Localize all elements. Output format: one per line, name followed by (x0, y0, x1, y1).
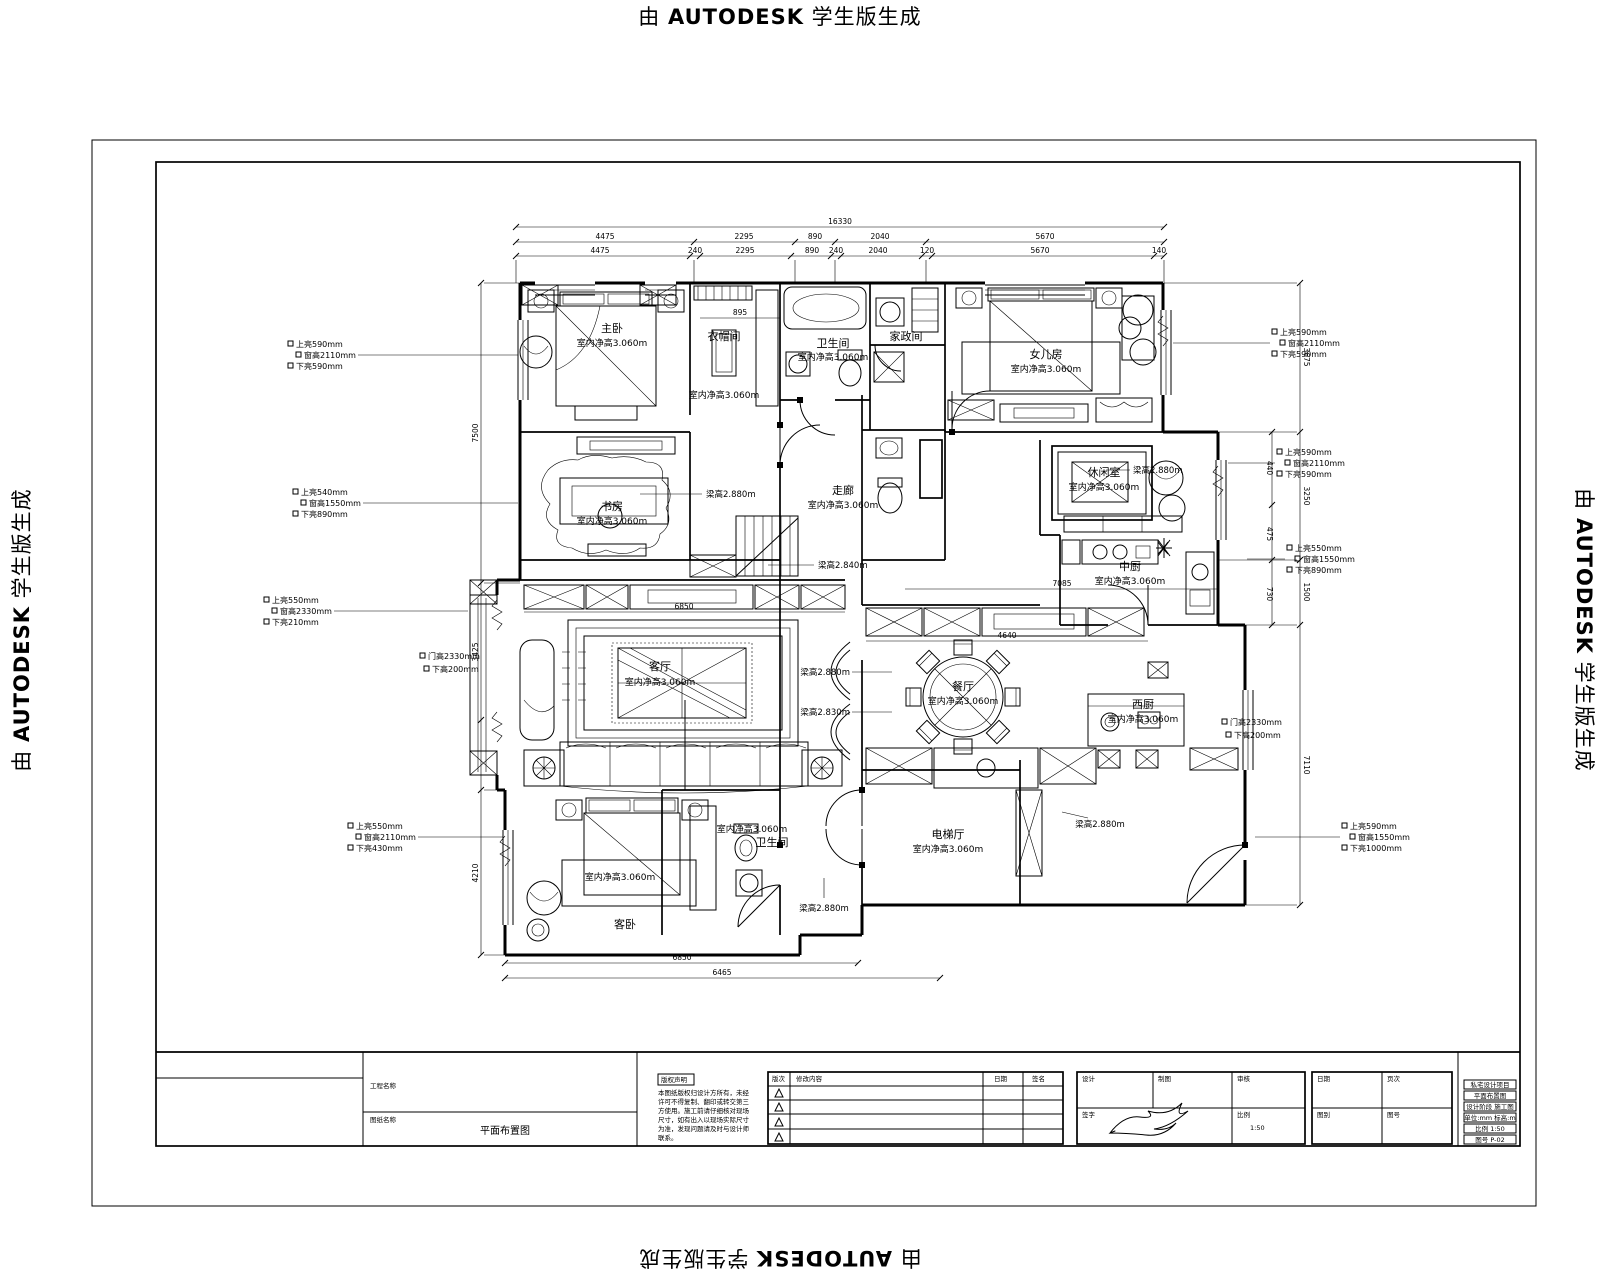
svg-text:修改内容: 修改内容 (796, 1074, 823, 1083)
svg-text:7085: 7085 (1052, 579, 1071, 588)
watermark-bottom: 由 AUTODESK 学生版生成 (638, 1246, 921, 1270)
svg-text:窗高2330mm: 窗高2330mm (280, 606, 332, 616)
label-housekeeping: 家政间 (890, 329, 923, 343)
svg-text:室内净高3.060m: 室内净高3.060m (689, 389, 760, 401)
svg-text:梁高2.880m: 梁高2.880m (800, 667, 850, 678)
svg-text:单位:mm 标高:m: 单位:mm 标高:m (1464, 1113, 1515, 1122)
label-dining: 餐厅 (952, 679, 974, 693)
svg-text:设计阶段 施工图: 设计阶段 施工图 (1466, 1102, 1514, 1111)
watermark-right: 由 AUTODESK 学生版生成 (1572, 488, 1596, 771)
svg-text:设计: 设计 (1082, 1074, 1096, 1083)
master-tv-cabinet (577, 437, 675, 454)
svg-text:4475: 4475 (595, 232, 614, 241)
svg-text:895: 895 (733, 308, 748, 317)
svg-text:上亮590mm: 上亮590mm (1285, 447, 1332, 457)
svg-text:下亮590mm: 下亮590mm (1280, 349, 1327, 359)
washer-icon-bottom (736, 870, 762, 896)
svg-text:由 AUTODESK 学生版生成: 由 AUTODESK 学生版生成 (638, 5, 921, 29)
label-kitchen-west: 西厨 (1132, 698, 1154, 711)
svg-text:由 AUTODESK 学生版生成: 由 AUTODESK 学生版生成 (638, 1246, 921, 1270)
svg-text:240: 240 (829, 246, 844, 255)
svg-text:4475: 4475 (590, 246, 609, 255)
svg-text:2295: 2295 (735, 246, 754, 255)
label-leisure: 休闲室 (1088, 465, 1121, 479)
project-label: 工程名称 (370, 1081, 397, 1090)
master-bed (556, 292, 656, 420)
svg-text:日期: 日期 (994, 1075, 1008, 1083)
svg-text:7110: 7110 (1302, 755, 1311, 774)
door-tag-right: 门高2330mm 下高200mm (1222, 717, 1282, 740)
svg-text:为准，发现问题请及时与设计师: 为准，发现问题请及时与设计师 (658, 1124, 750, 1133)
svg-text:730: 730 (1265, 587, 1274, 602)
svg-text:窗高1550mm: 窗高1550mm (1303, 554, 1355, 564)
svg-text:窗高1550mm: 窗高1550mm (309, 498, 361, 508)
svg-text:由 AUTODESK 学生版生成: 由 AUTODESK 学生版生成 (10, 488, 34, 771)
title-block: 工程名称 图纸名称 平面布置图 版权声明 本图纸版权归设计方所有，未经 许可不得… (156, 1052, 1520, 1146)
svg-text:梁高2.880m: 梁高2.880m (1075, 819, 1125, 830)
svg-text:1500: 1500 (1302, 582, 1311, 601)
label-bath-bottom: 卫生间 (756, 835, 789, 849)
master-armchair (520, 336, 552, 368)
svg-text:室内净高3.060m: 室内净高3.060m (717, 823, 788, 835)
living-arched-niches (831, 642, 850, 760)
svg-text:梁高2.880m: 梁高2.880m (706, 489, 756, 500)
svg-text:图号 P-02: 图号 P-02 (1475, 1136, 1504, 1144)
window-master-left (518, 320, 528, 400)
revision-table: 版次 修改内容 日期 签名 (768, 1072, 1063, 1144)
svg-text:门高2330mm: 门高2330mm (428, 651, 480, 661)
svg-text:2040: 2040 (868, 246, 887, 255)
washer-icon-top (876, 298, 904, 326)
label-guest: 客卧 (614, 917, 636, 931)
svg-text:4210: 4210 (471, 863, 480, 882)
bathtub-icon (784, 287, 866, 329)
svg-text:7500: 7500 (471, 423, 480, 442)
svg-text:室内净高3.060m: 室内净高3.060m (585, 871, 656, 883)
svg-text:窗高2110mm: 窗高2110mm (364, 832, 416, 842)
label-daughter: 女儿房 (1030, 347, 1063, 361)
svg-text:6465: 6465 (712, 968, 731, 977)
svg-text:图号: 图号 (1387, 1111, 1401, 1119)
svg-text:室内净高3.060m: 室内净高3.060m (577, 515, 648, 527)
svg-text:下亮890mm: 下亮890mm (301, 509, 348, 519)
svg-text:240: 240 (688, 246, 703, 255)
svg-text:6850: 6850 (674, 602, 693, 611)
living-end-tables (524, 750, 842, 786)
svg-text:室内净高3.060m: 室内净高3.060m (577, 337, 648, 349)
svg-text:页次: 页次 (1387, 1074, 1401, 1083)
window-leisure-right (1216, 460, 1226, 540)
svg-text:私宅设计项目: 私宅设计项目 (1471, 1080, 1510, 1089)
svg-text:审核: 审核 (1237, 1074, 1251, 1083)
svg-text:上亮590mm: 上亮590mm (1350, 821, 1397, 831)
svg-text:梁高2.840m: 梁高2.840m (818, 560, 868, 571)
cloak-wardrobe (694, 286, 778, 406)
window-tag-R1: 上亮590mm 窗高2110mm 下亮590mm (1173, 327, 1340, 359)
window-tag-R4: 上亮590mm 窗高1550mm 下亮1000mm (1255, 821, 1410, 853)
powder-room-fixtures (874, 352, 942, 513)
svg-text:室内净高3.060m: 室内净高3.060m (1095, 575, 1166, 587)
svg-text:方使用。施工前请仔细核对现场: 方使用。施工前请仔细核对现场 (658, 1106, 750, 1115)
dim-chain-bottom: 6850 6465 (502, 953, 943, 981)
sign-block: 设计 制图 审核 签字 比例 1:50 (1077, 1072, 1305, 1144)
svg-text:140: 140 (1152, 246, 1167, 255)
svg-text:下亮590mm: 下亮590mm (296, 361, 343, 371)
window-tag-L2: 上亮540mm 窗高1550mm 下亮890mm (293, 487, 518, 519)
svg-text:窗高2110mm: 窗高2110mm (304, 350, 356, 360)
svg-text:16330: 16330 (828, 217, 852, 226)
window-tag-L3: 上亮550mm 窗高2330mm 下亮210mm (264, 595, 468, 627)
svg-text:制图: 制图 (1158, 1074, 1171, 1083)
label-master: 主卧 (601, 322, 623, 335)
label-living: 客厅 (649, 659, 671, 673)
svg-text:2040: 2040 (870, 232, 889, 241)
svg-text:475: 475 (1265, 527, 1274, 542)
housekeeping-shelf (912, 288, 938, 332)
svg-text:比例: 比例 (1237, 1110, 1250, 1119)
guest-nightstands (556, 800, 708, 820)
bath-bottom-wardrobe (690, 806, 716, 910)
svg-text:室内净高3.060m: 室内净高3.060m (1108, 713, 1179, 725)
label-bath-top: 卫生间 (817, 336, 850, 350)
svg-text:梁高2.880m: 梁高2.880m (799, 903, 849, 914)
svg-text:室内净高3.060m: 室内净高3.060m (928, 695, 999, 707)
svg-text:本图纸版权归设计方所有，未经: 本图纸版权归设计方所有，未经 (658, 1088, 750, 1097)
label-cloak: 衣帽间 (708, 329, 741, 343)
daughter-chairs (1123, 295, 1156, 365)
svg-text:下亮1000mm: 下亮1000mm (1350, 843, 1402, 853)
svg-text:窗高1550mm: 窗高1550mm (1358, 832, 1410, 842)
daughter-desk (1119, 296, 1154, 360)
label-elevator-hall: 电梯厅 (932, 828, 965, 841)
label-kitchen-cn: 中厨 (1119, 560, 1141, 573)
svg-text:890: 890 (805, 246, 820, 255)
svg-text:签名: 签名 (1032, 1074, 1045, 1083)
watermark-top: 由 AUTODESK 学生版生成 (638, 5, 921, 29)
svg-text:下亮890mm: 下亮890mm (1295, 565, 1342, 575)
interior-walls (520, 283, 1248, 935)
label-study: 书房 (601, 500, 623, 513)
number-block: 日期 页次 图别 图号 (1312, 1072, 1452, 1144)
svg-text:梁高2.830m: 梁高2.830m (800, 707, 850, 718)
svg-text:日期: 日期 (1317, 1075, 1331, 1083)
svg-text:门高2330mm: 门高2330mm (1230, 717, 1282, 727)
svg-text:尺寸，如有出入以现场实际尺寸: 尺寸，如有出入以现场实际尺寸 (658, 1115, 750, 1124)
svg-text:上亮590mm: 上亮590mm (296, 339, 343, 349)
drawing-name: 平面布置图 (480, 1125, 530, 1137)
dim-chain-top: 16330 4475 2295 890 2040 5670 4475 240 2… (513, 217, 1167, 283)
svg-text:联系。: 联系。 (658, 1133, 678, 1142)
cad-sheet: 由 AUTODESK 学生版生成 由 AUTODESK 学生版生成 由 AUTO… (0, 0, 1600, 1280)
window-tag-L4: 上亮550mm 窗高2110mm 下亮430mm (348, 821, 503, 853)
svg-text:窗高2110mm: 窗高2110mm (1288, 338, 1340, 348)
svg-text:图别: 图别 (1317, 1110, 1330, 1119)
guest-chair (527, 881, 561, 941)
svg-text:许可不得复制、翻印或转交第三: 许可不得复制、翻印或转交第三 (658, 1097, 750, 1106)
svg-text:室内净高3.060m: 室内净高3.060m (798, 351, 869, 363)
window-tag-L1: 上亮590mm 窗高2110mm 下亮590mm (288, 339, 518, 371)
window-daughter-right (1161, 310, 1171, 395)
svg-text:3250: 3250 (1302, 486, 1311, 505)
svg-text:比例 1:50: 比例 1:50 (1475, 1124, 1505, 1133)
svg-text:下亮430mm: 下亮430mm (356, 843, 403, 853)
svg-text:室内净高3.060m: 室内净高3.060m (625, 676, 696, 688)
svg-text:890: 890 (808, 232, 823, 241)
svg-text:120: 120 (920, 246, 935, 255)
window-guest-left (503, 830, 513, 925)
svg-text:室内净高3.060m: 室内净高3.060m (913, 843, 984, 855)
sheet-info-boxes: 私宅设计项目 平面布置图 设计阶段 施工图 单位:mm 标高:m 比例 1:50… (1458, 1052, 1516, 1146)
daughter-console (948, 398, 1152, 422)
svg-text:版权声明: 版权声明 (661, 1075, 688, 1084)
svg-text:室内净高3.060m: 室内净高3.060m (808, 499, 879, 511)
svg-text:窗高2110mm: 窗高2110mm (1293, 458, 1345, 468)
svg-text:上亮540mm: 上亮540mm (301, 487, 348, 497)
stairs (736, 516, 798, 576)
svg-text:下亮590mm: 下亮590mm (1285, 469, 1332, 479)
svg-text:下高200mm: 下高200mm (432, 664, 479, 674)
drawing-label: 图纸名称 (370, 1115, 397, 1124)
floor-plan-drawing: 由 AUTODESK 学生版生成 由 AUTODESK 学生版生成 由 AUTO… (0, 0, 1600, 1280)
svg-text:上亮550mm: 上亮550mm (356, 821, 403, 831)
label-corridor: 走廊 (832, 483, 854, 497)
svg-text:上亮550mm: 上亮550mm (1295, 543, 1342, 553)
svg-text:室内净高3.060m: 室内净高3.060m (1069, 481, 1140, 493)
svg-text:上亮550mm: 上亮550mm (272, 595, 319, 605)
svg-text:5670: 5670 (1030, 246, 1049, 255)
svg-text:上亮590mm: 上亮590mm (1280, 327, 1327, 337)
svg-text:梁高2.880m: 梁高2.880m (1133, 465, 1183, 476)
svg-text:下亮210mm: 下亮210mm (272, 617, 319, 627)
svg-text:签字: 签字 (1082, 1110, 1096, 1119)
window-tag-R2: 上亮590mm 窗高2110mm 下亮590mm (1228, 447, 1345, 479)
svg-text:1:50: 1:50 (1250, 1124, 1265, 1132)
svg-text:版次: 版次 (772, 1074, 786, 1083)
copyright-block: 版权声明 本图纸版权归设计方所有，未经 许可不得复制、翻印或转交第三 方使用。施… (658, 1074, 750, 1142)
window-lowerright (1243, 690, 1253, 770)
svg-text:由 AUTODESK 学生版生成: 由 AUTODESK 学生版生成 (1572, 488, 1596, 771)
svg-text:室内净高3.060m: 室内净高3.060m (1011, 363, 1082, 375)
watermark-left: 由 AUTODESK 学生版生成 (10, 488, 34, 771)
svg-text:下高200mm: 下高200mm (1234, 730, 1281, 740)
svg-text:平面布置图: 平面布置图 (1474, 1091, 1507, 1100)
svg-text:2295: 2295 (734, 232, 753, 241)
svg-text:5670: 5670 (1035, 232, 1054, 241)
